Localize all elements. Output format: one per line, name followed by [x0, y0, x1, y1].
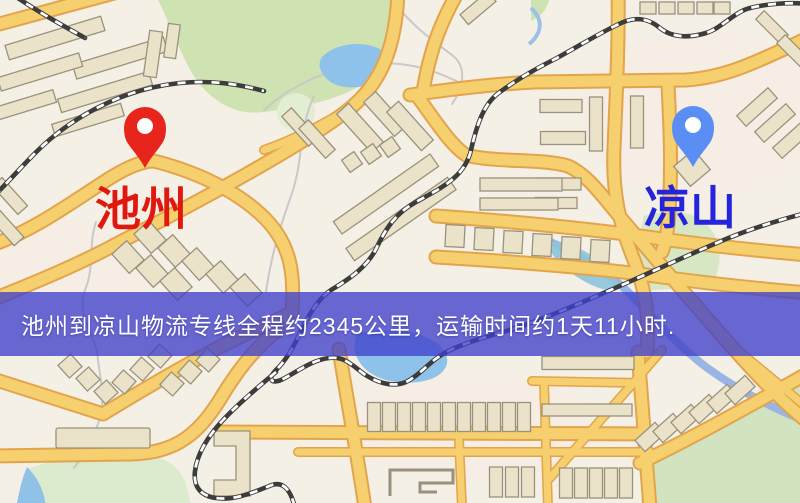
route-info-text: 池州到凉山物流专线全程约2345公里，运输时间约1天11小时. — [0, 307, 675, 341]
map-canvas: 池州 凉山 — [0, 0, 800, 503]
origin-label: 池州 — [95, 183, 187, 235]
logistics-route-map: 池州 凉山 池州到凉山物流专线全程约2345公里，运输时间约1天11小时. — [0, 0, 800, 503]
destination-label: 凉山 — [644, 182, 736, 234]
route-info-banner: 池州到凉山物流专线全程约2345公里，运输时间约1天11小时. — [0, 292, 800, 356]
